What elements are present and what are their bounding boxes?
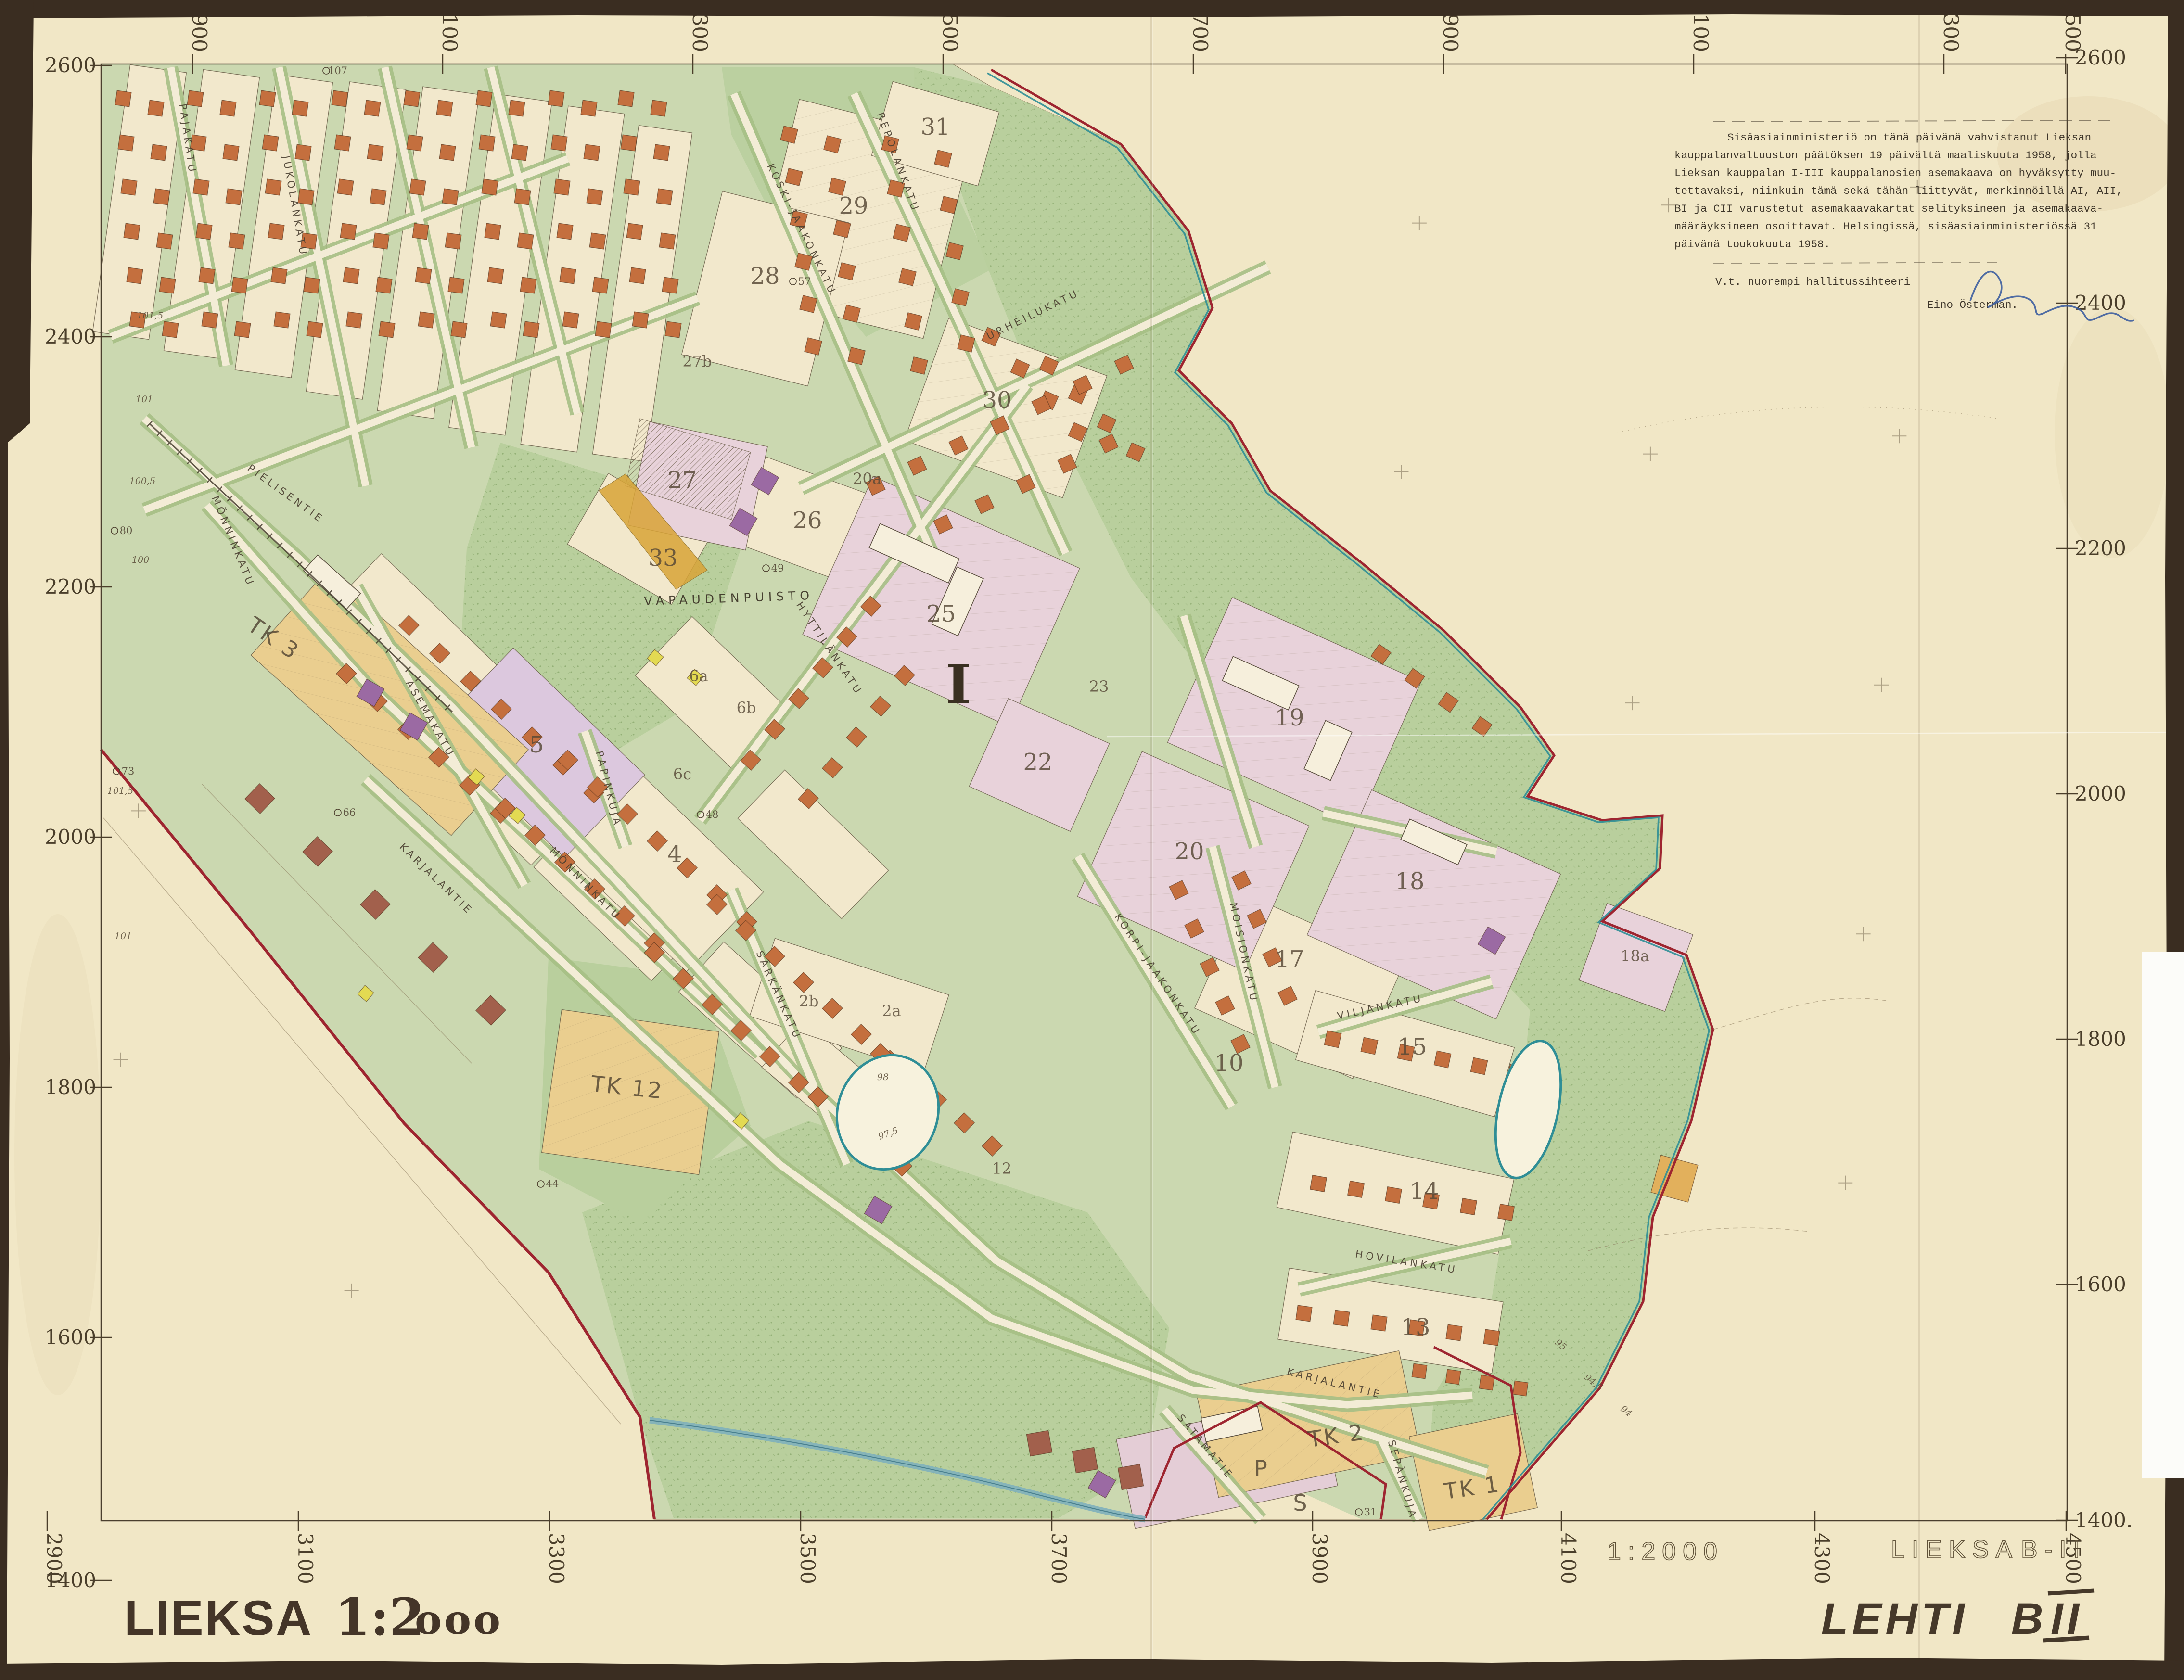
grid-label-east: 2200	[2075, 536, 2126, 560]
building	[124, 223, 140, 240]
building	[196, 223, 212, 240]
building	[893, 224, 910, 242]
building	[595, 321, 612, 338]
block-number-label: 14	[1409, 1178, 1439, 1205]
grid-label-south: 2900	[42, 1533, 66, 1584]
grid-label-south: 3100	[294, 1533, 317, 1584]
building	[548, 90, 564, 107]
block-number-label: 18a	[1621, 947, 1649, 965]
building	[229, 233, 245, 249]
statement-line: BI ja CII varustetut asemakaavakartat se…	[1674, 203, 2103, 215]
building	[662, 277, 678, 293]
building	[442, 189, 459, 205]
building	[592, 277, 609, 293]
grid-label-south: 3700	[1047, 1533, 1071, 1584]
block-number-label: 27b	[682, 352, 712, 370]
grid-label-south: 4100	[1557, 1533, 1580, 1584]
building	[259, 90, 276, 107]
elevation-label: 101,5	[107, 786, 133, 796]
elevation-label: 100	[132, 555, 149, 565]
building	[805, 338, 822, 355]
building	[1324, 1031, 1341, 1048]
building	[589, 233, 606, 249]
roman-underline	[2043, 1638, 2089, 1641]
building	[551, 135, 567, 151]
building	[370, 189, 386, 205]
block-number-label: 29	[839, 192, 868, 219]
building	[187, 90, 204, 107]
building	[439, 144, 456, 161]
building	[265, 179, 281, 195]
building	[621, 135, 637, 151]
building	[476, 90, 492, 107]
building	[346, 312, 362, 328]
point-number-label: 73	[122, 765, 135, 777]
building	[376, 277, 392, 293]
block-number-label: 6c	[673, 765, 691, 783]
block-number-label: 18	[1395, 868, 1424, 895]
statement-line: määräyksineen osoittavat. Helsingissä, s…	[1674, 220, 2097, 233]
elevation-label: 101	[136, 394, 153, 405]
building	[905, 313, 922, 330]
block-number-label: 19	[1275, 704, 1304, 731]
building	[843, 305, 860, 322]
building	[848, 347, 865, 365]
building	[940, 196, 958, 214]
block-number-label: 6b	[737, 699, 756, 717]
building	[202, 312, 218, 328]
building	[838, 263, 856, 280]
building	[958, 335, 975, 352]
tk-block-label: S	[1293, 1490, 1309, 1516]
building	[334, 135, 351, 151]
building	[199, 267, 215, 284]
building	[584, 144, 600, 161]
building	[295, 144, 311, 161]
building	[1072, 1447, 1098, 1473]
block-number-label: 22	[1023, 749, 1052, 776]
building	[337, 179, 354, 195]
building	[1296, 1305, 1312, 1322]
point-number-label: 49	[771, 562, 784, 574]
scanned-map-sheet: PAJAKATUJUKOLANKATUMÖNNINKATUMÖNNINKATUK…	[0, 0, 2184, 1680]
grid-label-south: 3900	[1308, 1533, 1331, 1584]
grid-label-east: 2000	[2075, 782, 2126, 805]
building	[952, 289, 969, 306]
map-canvas: PAJAKATUJUKOLANKATUMÖNNINKATUMÖNNINKATUK…	[0, 0, 2184, 1680]
statement-line: Lieksan kauppalan I-III kauppalanosien a…	[1674, 167, 2116, 179]
building	[1118, 1464, 1143, 1489]
block-number-label: 12	[992, 1159, 1012, 1178]
building	[1026, 1430, 1052, 1456]
point-number-label: 48	[706, 809, 719, 820]
building	[151, 144, 167, 161]
statement-line: tettavaksi, niinkuin tämä sekä tähän lii…	[1674, 185, 2123, 197]
building	[223, 144, 239, 161]
building	[304, 277, 320, 293]
block-number-label: 23	[1089, 677, 1109, 696]
building	[1434, 1051, 1451, 1068]
building	[153, 189, 170, 205]
building	[626, 223, 643, 240]
building	[1371, 1315, 1387, 1331]
scale-prefix: 1:2	[335, 1587, 425, 1647]
point-number-label: 44	[546, 1178, 559, 1190]
block-number-label: 33	[648, 545, 677, 572]
grid-label-west: 1600	[45, 1325, 96, 1349]
grid-label-east: 1400.	[2075, 1508, 2133, 1532]
building	[509, 100, 525, 116]
building	[412, 223, 429, 240]
building	[833, 220, 851, 238]
corner-sheet: B-II	[2021, 1536, 2087, 1564]
lehti-word: LEHTI	[1821, 1594, 1968, 1643]
building	[780, 126, 798, 143]
grid-label-south: 3300	[545, 1533, 568, 1584]
point-number-label: 107	[328, 65, 347, 76]
building	[307, 321, 323, 338]
block-number-label: 2b	[799, 992, 819, 1010]
signer-name: Eino Österman.	[1927, 299, 2018, 311]
block-number-label: 26	[792, 507, 822, 534]
building	[523, 321, 539, 338]
building	[156, 233, 173, 249]
building	[268, 223, 284, 240]
building	[899, 268, 916, 286]
grid-label-south: 3500	[796, 1533, 819, 1584]
grid-label-east: 1600	[2075, 1273, 2126, 1296]
block-number-label: 5	[529, 731, 544, 758]
grid-label-west: 2200	[45, 575, 96, 598]
roman-overline	[2048, 1591, 2094, 1593]
corner-scale: 1:2000	[1607, 1538, 1724, 1565]
building	[373, 233, 389, 249]
building	[274, 312, 290, 328]
building	[490, 312, 507, 328]
block-number-label: 31	[920, 114, 950, 140]
grid-label-west: 1800	[45, 1075, 96, 1099]
building	[418, 312, 434, 328]
building	[148, 100, 164, 116]
building	[451, 321, 467, 338]
building	[651, 100, 667, 116]
point-number-label: 31	[1364, 1506, 1377, 1518]
building	[1412, 1363, 1427, 1379]
building	[193, 179, 209, 195]
point-number-label: 66	[343, 807, 356, 818]
building	[554, 179, 570, 195]
building	[910, 357, 928, 374]
building	[562, 312, 579, 328]
building	[271, 267, 287, 284]
building	[587, 189, 603, 205]
building	[800, 295, 817, 313]
building	[1333, 1310, 1350, 1326]
building	[367, 144, 383, 161]
building	[665, 321, 681, 338]
building	[220, 100, 236, 116]
white-paper-patch	[2142, 952, 2184, 1478]
building	[234, 321, 251, 338]
building	[292, 100, 308, 116]
block-number-label: 17	[1275, 946, 1304, 973]
block-number-label: 20a	[853, 470, 881, 488]
building	[618, 90, 634, 107]
building	[115, 90, 131, 107]
building	[557, 223, 573, 240]
building	[946, 242, 963, 260]
building	[162, 321, 179, 338]
paper-stain	[14, 914, 101, 1395]
building	[517, 233, 534, 249]
block-number-label: 13	[1401, 1314, 1430, 1341]
building	[485, 223, 501, 240]
point-number-label: 80	[120, 525, 133, 536]
building	[121, 179, 137, 195]
signer-title: V.t. nuorempi hallitussihteeri	[1715, 276, 1910, 288]
district-numeral-label: I	[946, 653, 971, 716]
block-number-label: 2a	[882, 1002, 901, 1020]
building	[656, 189, 673, 205]
building	[231, 277, 248, 293]
building	[560, 267, 576, 284]
block-number-label: 25	[926, 600, 956, 627]
building	[824, 136, 841, 153]
building	[653, 144, 670, 161]
grid-label-east: 1800	[2075, 1027, 2126, 1051]
lehti-b: B	[2011, 1594, 2047, 1643]
grid-label-south: 4300	[1810, 1533, 1834, 1584]
building	[487, 267, 504, 284]
building	[127, 267, 143, 284]
elevation-label: 100,5	[129, 476, 155, 486]
block-number-label: 27	[667, 467, 697, 494]
statement-line: päivänä toukokuuta 1958.	[1674, 238, 1830, 251]
building	[624, 179, 640, 195]
building	[659, 233, 676, 249]
building	[1446, 1324, 1462, 1341]
building	[404, 90, 420, 107]
building	[1460, 1198, 1477, 1215]
building	[1385, 1187, 1402, 1204]
building	[445, 233, 461, 249]
building	[118, 135, 134, 151]
building	[629, 267, 646, 284]
statement-line: kauppalanvaltuuston päätöksen 19 päivält…	[1674, 149, 2097, 162]
elevation-label: 98	[877, 1072, 889, 1082]
corner-name: LIEKSA	[1891, 1536, 2019, 1564]
lehti-roman: II	[2051, 1594, 2083, 1643]
building	[364, 100, 381, 116]
building	[1483, 1329, 1500, 1346]
building	[1470, 1057, 1488, 1075]
block-number-label: 30	[982, 387, 1011, 414]
building	[409, 179, 426, 195]
building	[934, 150, 952, 167]
building	[520, 277, 536, 293]
point-number-label: 57	[798, 276, 811, 287]
building	[511, 144, 528, 161]
sheet-title: LIEKSA	[124, 1591, 313, 1645]
building	[332, 90, 348, 107]
elevation-label: 101	[115, 931, 132, 942]
building	[632, 312, 649, 328]
building	[262, 135, 279, 151]
building	[1445, 1369, 1461, 1385]
building	[581, 100, 597, 116]
building	[1361, 1037, 1378, 1055]
block-number-label: 20	[1175, 838, 1204, 865]
building	[436, 100, 453, 116]
grid-label-west: 2400	[45, 325, 96, 348]
paper-stain	[2055, 308, 2170, 558]
building	[514, 189, 531, 205]
building	[407, 135, 423, 151]
building	[226, 189, 242, 205]
building	[448, 277, 464, 293]
building	[1310, 1175, 1327, 1192]
building	[1348, 1181, 1365, 1198]
building	[479, 135, 495, 151]
building	[482, 179, 498, 195]
building	[159, 277, 176, 293]
block-number-label: 28	[750, 263, 779, 290]
block-number-label: 10	[1214, 1050, 1243, 1077]
grid-label-west: 2600	[45, 53, 96, 77]
statement-line: Sisäasiainministeriö on tänä päivänä vah…	[1727, 131, 2091, 144]
grid-label-west: 2000	[45, 825, 96, 849]
building	[415, 267, 432, 284]
building	[379, 321, 395, 338]
block-number-label: 4	[667, 841, 682, 868]
building	[1498, 1204, 1515, 1221]
block-number-label: 6a	[689, 667, 708, 685]
block-number-label: 15	[1397, 1033, 1427, 1060]
elevation-label: 101,5	[137, 310, 163, 321]
building	[785, 168, 803, 186]
building	[343, 267, 359, 284]
scale-zeros: ooo	[415, 1596, 503, 1643]
building	[1513, 1381, 1528, 1396]
tk-block-label: P	[1254, 1455, 1269, 1481]
building	[340, 223, 357, 240]
